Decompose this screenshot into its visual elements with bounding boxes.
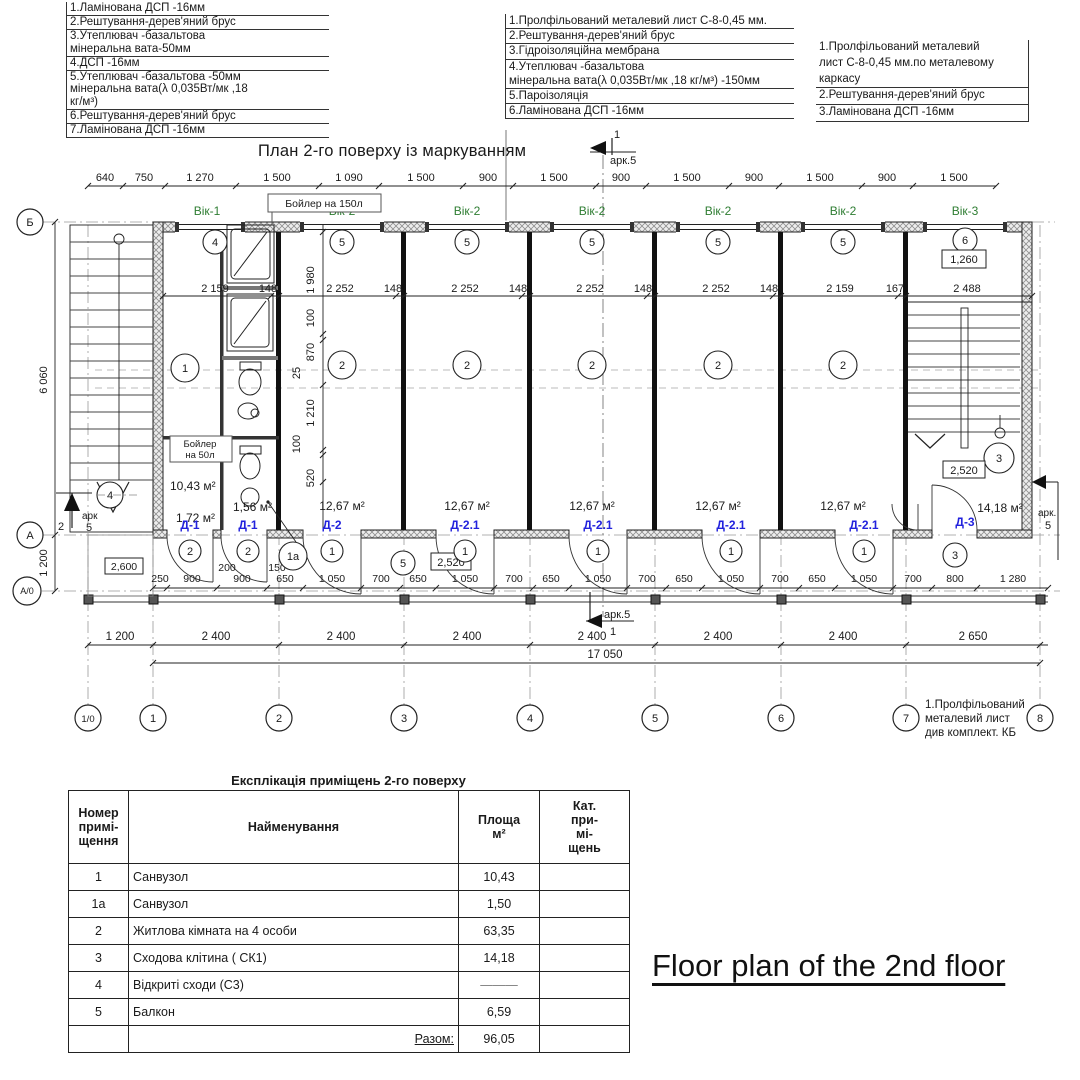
dim-inner: 700 bbox=[372, 573, 390, 585]
note-line: 2.Рештування-дерев'яний брус bbox=[506, 29, 794, 44]
note-line: 2.Рештування-дерев'яний брус bbox=[67, 16, 329, 30]
sheet-ref: арк. bbox=[1038, 508, 1056, 519]
col-header-name: Найменування bbox=[129, 791, 459, 864]
window-label: Вік-1 bbox=[194, 204, 221, 218]
dim-top: 900 bbox=[745, 172, 763, 184]
element-number: 6 bbox=[962, 235, 968, 247]
total-label-cell: Разом: bbox=[129, 1026, 459, 1053]
dim-1200: 1 200 bbox=[38, 549, 50, 577]
dim-inner: 1 050 bbox=[585, 573, 611, 585]
dim-bottom: 2 650 bbox=[959, 631, 988, 643]
dim-inner: 900 bbox=[233, 573, 251, 585]
table-title: Експлікація приміщень 2-го поверху bbox=[68, 773, 629, 788]
dim-vert: 520 bbox=[305, 469, 317, 487]
dim-mid: 2 252 bbox=[576, 283, 604, 295]
room-number-cell: 1a bbox=[69, 891, 129, 918]
room-name-cell: Балкон bbox=[129, 999, 459, 1026]
note-profiled-sheet: 1.Пролфільований металевий лист див комп… bbox=[925, 698, 1045, 740]
dim-vert: 870 bbox=[305, 343, 317, 361]
axis-label: 5 bbox=[652, 713, 658, 725]
dim-bottom: 2 400 bbox=[327, 631, 356, 643]
door-number: 3 bbox=[952, 550, 958, 562]
axis-label: Б bbox=[26, 217, 33, 229]
room-name-cell: Санвузол bbox=[129, 864, 459, 891]
note-line: 1.Пролфільований металевий bbox=[816, 40, 1028, 56]
room-circles: 1 2 2 2 2 2 3 4 bbox=[97, 351, 1014, 508]
dim-mid: 2 159 bbox=[201, 283, 229, 295]
axis-label: 1 bbox=[150, 713, 156, 725]
partition-walls bbox=[276, 232, 908, 530]
area-room2: 12,67 м² bbox=[695, 499, 741, 513]
window-label: Вік-3 bbox=[952, 204, 979, 218]
dim-top: 900 bbox=[612, 172, 630, 184]
note-line: лист С-8-0,45 мм.по металевому bbox=[816, 56, 1028, 72]
door-mark: Д-1 bbox=[238, 518, 258, 532]
room-number: 4 bbox=[107, 490, 113, 502]
dim-mid: 167 bbox=[886, 283, 904, 295]
room-number: 2 bbox=[339, 360, 345, 372]
dim-mid: 2 252 bbox=[326, 283, 354, 295]
area-room2: 12,67 м² bbox=[319, 499, 365, 513]
window-label: Вік-2 bbox=[705, 204, 732, 218]
room-name-cell: Житлова кімната на 4 особи bbox=[129, 918, 459, 945]
room-number-1a: 1a bbox=[287, 551, 300, 563]
dim-top: 1 500 bbox=[540, 172, 568, 184]
door-number: 1 bbox=[728, 546, 734, 558]
area-room3: 14,18 м² bbox=[977, 501, 1023, 515]
room-area-cell: 1,50 bbox=[459, 891, 540, 918]
room-name-cell: Сходова клітина ( СК1) bbox=[129, 945, 459, 972]
dim-inner: 650 bbox=[675, 573, 693, 585]
dim-inner: 1 050 bbox=[319, 573, 345, 585]
boiler-150-label: Бойлер на 150л bbox=[285, 198, 363, 210]
element-number: 5 bbox=[715, 237, 721, 249]
element-number: 5 bbox=[464, 237, 470, 249]
sheet-ref: 5 bbox=[1045, 520, 1051, 532]
dim-mid: 148 bbox=[384, 283, 402, 295]
room-number-cell: 2 bbox=[69, 918, 129, 945]
door-mark: Д-3 bbox=[955, 515, 975, 529]
section-marker-left: 2 арк 5 bbox=[56, 493, 98, 534]
dim-top: 900 bbox=[479, 172, 497, 184]
dim-inner: 900 bbox=[183, 573, 201, 585]
table-row: 3 Сходова клітина ( СК1) 14,18 bbox=[69, 945, 630, 972]
note-line: мінеральна вата(λ 0,035Вт/мк ,18 bbox=[67, 83, 329, 96]
floor-plan-drawing: 640 750 1 270 1 500 1 090 1 500 900 1 50… bbox=[0, 130, 1080, 770]
door-mark: Д-2.1 bbox=[583, 518, 613, 532]
dim-200: 200 bbox=[218, 562, 236, 574]
dim-mid: 2 252 bbox=[702, 283, 730, 295]
sheet-ref: арк.5 bbox=[604, 609, 630, 621]
dim-mid: 148 bbox=[259, 283, 277, 295]
area-room2: 12,67 м² bbox=[820, 499, 866, 513]
table-row: 5 Балкон 6,59 bbox=[69, 999, 630, 1026]
door-mark: Д-2 bbox=[322, 518, 342, 532]
dim-inner: 1 050 bbox=[452, 573, 478, 585]
dim-line-vert-chain: 1 980 100 870 25 1 210 100 520 bbox=[291, 225, 326, 530]
dim-total: 17 050 bbox=[587, 649, 622, 661]
room-area-cell: 10,43 bbox=[459, 864, 540, 891]
dim-bottom: 2 400 bbox=[453, 631, 482, 643]
dim-inner: 650 bbox=[542, 573, 560, 585]
col-header-number: Номерпримі-щення bbox=[69, 791, 129, 864]
right-staircase bbox=[906, 302, 1032, 448]
room-category-cell bbox=[540, 945, 630, 972]
note-line: мінеральна вата-50мм bbox=[67, 43, 329, 57]
dim-inner: 1 050 bbox=[718, 573, 744, 585]
sheet-ref: арк.5 bbox=[610, 155, 636, 167]
room-number: 1 bbox=[182, 363, 188, 375]
dim-inner: 800 bbox=[946, 573, 964, 585]
dim-mid: 148 bbox=[509, 283, 527, 295]
room-area-cell: ——— bbox=[459, 972, 540, 999]
room-area-cell: 6,59 bbox=[459, 999, 540, 1026]
note-line: 3.Ламінована ДСП -16мм bbox=[816, 105, 1028, 122]
dim-top: 1 500 bbox=[673, 172, 701, 184]
room-category-cell bbox=[540, 864, 630, 891]
window-label: Вік-2 bbox=[830, 204, 857, 218]
dim-bottom: 2 400 bbox=[704, 631, 733, 643]
area-room2: 12,67 м² bbox=[569, 499, 615, 513]
door-mark: Д-2.1 bbox=[716, 518, 746, 532]
empty-cell bbox=[69, 1026, 129, 1053]
door-mark: Д-2.1 bbox=[849, 518, 879, 532]
axis-label: А bbox=[26, 530, 34, 542]
room-category-cell bbox=[540, 918, 630, 945]
exterior-walls bbox=[153, 222, 1032, 538]
dim-mid: 148 bbox=[760, 283, 778, 295]
dim-vert: 100 bbox=[305, 309, 317, 327]
axis-label: 6 bbox=[778, 713, 784, 725]
dim-inner: 650 bbox=[409, 573, 427, 585]
dim-inner: 1 280 bbox=[1000, 573, 1026, 585]
dim-bottom: 2 400 bbox=[202, 631, 231, 643]
dim-mid: 148 bbox=[634, 283, 652, 295]
axis-bubbles-left: Б А А/0 bbox=[13, 209, 43, 605]
dim-vert: 1 980 bbox=[305, 266, 317, 294]
dim-top: 900 bbox=[878, 172, 896, 184]
door-mark: Д-2.1 bbox=[450, 518, 480, 532]
dim-top: 1 500 bbox=[806, 172, 834, 184]
level-2600: 2,600 bbox=[111, 561, 137, 573]
window-label: Вік-2 bbox=[454, 204, 481, 218]
dim-inner: 650 bbox=[276, 573, 294, 585]
dim-top: 640 bbox=[96, 172, 114, 184]
empty-cell bbox=[540, 1026, 630, 1053]
boiler-150: Бойлер на 150л bbox=[268, 194, 381, 225]
boiler-50: Бойлер на 50л bbox=[170, 436, 232, 462]
axis-label: 4 bbox=[527, 713, 533, 725]
door-number: 2 bbox=[187, 546, 193, 558]
element-number: 5 bbox=[589, 237, 595, 249]
room-category-cell bbox=[540, 891, 630, 918]
dim-mid: 2 252 bbox=[451, 283, 479, 295]
room-number-cell: 5 bbox=[69, 999, 129, 1026]
axis-label: А/0 bbox=[20, 586, 34, 596]
table-row: 2 Житлова кімната на 4 особи 63,35 bbox=[69, 918, 630, 945]
dim-inner: 650 bbox=[808, 573, 826, 585]
area-room1: 10,43 м² bbox=[170, 479, 216, 493]
room-number: 2 bbox=[715, 360, 721, 372]
table-row: 4 Відкриті сходи (С3) ——— bbox=[69, 972, 630, 999]
total-area-cell: 96,05 bbox=[459, 1026, 540, 1053]
boiler-50-label: на 50л bbox=[185, 450, 214, 461]
dim-top: 1 270 bbox=[186, 172, 214, 184]
dim-top: 1 090 bbox=[335, 172, 363, 184]
note-line: каркасу bbox=[816, 72, 1028, 89]
note-line: 4.ДСП -16мм bbox=[67, 57, 329, 71]
note-line: див комплект. КБ bbox=[925, 726, 1045, 740]
note-line: 4.Утеплювач -базальтова bbox=[506, 60, 794, 74]
door-number: 1 bbox=[329, 546, 335, 558]
note-wall-layers-right: 1.Пролфільований металевий лист С-8-0,45… bbox=[816, 40, 1029, 122]
room-category-cell bbox=[540, 972, 630, 999]
door-number: 2 bbox=[245, 546, 251, 558]
note-line: 3.Гідроізоляційна мембрана bbox=[506, 44, 794, 59]
dim-mid: 2 488 bbox=[953, 283, 981, 295]
section-marker-top: арк.5 1 bbox=[590, 130, 636, 167]
balcony-number: 5 bbox=[400, 558, 406, 570]
note-line: 5.Пароізоляція bbox=[506, 89, 794, 104]
level-2520: 2,520 bbox=[950, 465, 978, 477]
room-area-cell: 63,35 bbox=[459, 918, 540, 945]
dim-top: 750 bbox=[135, 172, 153, 184]
room-number-cell: 3 bbox=[69, 945, 129, 972]
dim-inner: 700 bbox=[505, 573, 523, 585]
section-number: 1 bbox=[614, 130, 620, 141]
room-number-cell: 4 bbox=[69, 972, 129, 999]
dim-line-top: 640 750 1 270 1 500 1 090 1 500 900 1 50… bbox=[85, 172, 999, 189]
dim-vert: 100 bbox=[291, 435, 303, 453]
axis-label: 2 bbox=[276, 713, 282, 725]
dim-6060: 6 060 bbox=[38, 366, 50, 394]
section-number: 1 bbox=[610, 626, 616, 638]
dim-vert: 25 bbox=[291, 367, 303, 379]
boiler-50-label: Бойлер bbox=[184, 439, 217, 450]
dim-bottom: 2 400 bbox=[829, 631, 858, 643]
door-number: 1 bbox=[861, 546, 867, 558]
dim-inner: 700 bbox=[638, 573, 656, 585]
note-line: 2.Рештування-дерев'яний брус bbox=[816, 88, 1028, 105]
table-row: 1a Санвузол 1,50 bbox=[69, 891, 630, 918]
section-marker-right: арк. 5 bbox=[1032, 475, 1058, 560]
dim-inner: 1 050 bbox=[851, 573, 877, 585]
axis-label: 3 bbox=[401, 713, 407, 725]
area-156: 1,56 м² bbox=[233, 500, 272, 514]
note-line: 3.Утеплювач -базальтова bbox=[67, 30, 329, 43]
axis-label: 1/0 bbox=[81, 714, 94, 725]
table-row: 1 Санвузол 10,43 bbox=[69, 864, 630, 891]
dim-top: 1 500 bbox=[263, 172, 291, 184]
room-number: 2 bbox=[840, 360, 846, 372]
dim-mid: 2 159 bbox=[826, 283, 854, 295]
note-line: кг/м³) bbox=[67, 96, 329, 110]
col-header-area: Площам² bbox=[459, 791, 540, 864]
room-name-cell: Санвузол bbox=[129, 891, 459, 918]
dim-top: 1 500 bbox=[940, 172, 968, 184]
room-category-cell bbox=[540, 999, 630, 1026]
area-room2: 12,67 м² bbox=[444, 499, 490, 513]
explication-table: Експлікація приміщень 2-го поверху Номер… bbox=[68, 773, 629, 1053]
axis-label: 7 bbox=[903, 713, 909, 725]
level-1260: 1,260 bbox=[950, 254, 978, 266]
table-total-row: Разом: 96,05 bbox=[69, 1026, 630, 1053]
dim-vert: 1 210 bbox=[305, 399, 317, 427]
element-number: 5 bbox=[840, 237, 846, 249]
window-label: Вік-2 bbox=[579, 204, 606, 218]
dim-line-bottom: 1 200 2 400 2 400 2 400 2 400 2 400 2 40… bbox=[85, 631, 1048, 666]
section-number: 2 bbox=[58, 521, 64, 533]
note-wall-layers-left: 1.Ламінована ДСП -16мм 2.Рештування-дере… bbox=[66, 2, 329, 138]
col-header-category: Кат.при-мі-щень bbox=[540, 791, 630, 864]
note-line: 1.Ламінована ДСП -16мм bbox=[67, 2, 329, 16]
room-number-cell: 1 bbox=[69, 864, 129, 891]
note-line: 6.Ламінована ДСП -16мм bbox=[506, 104, 794, 119]
dim-top: 1 500 bbox=[407, 172, 435, 184]
note-line: металевий лист bbox=[925, 712, 1045, 726]
dim-inner: 700 bbox=[771, 573, 789, 585]
drawing-caption: Floor plan of the 2nd floor bbox=[652, 948, 1005, 984]
door-mark: Д-1 bbox=[180, 518, 200, 532]
door-number: 1 bbox=[595, 546, 601, 558]
door-number: 1 bbox=[462, 546, 468, 558]
room-name-cell: Відкриті сходи (С3) bbox=[129, 972, 459, 999]
room-number: 2 bbox=[464, 360, 470, 372]
dim-inner: 700 bbox=[904, 573, 922, 585]
dim-bottom: 2 400 bbox=[578, 631, 607, 643]
room-number: 3 bbox=[996, 453, 1002, 465]
sheet-ref: 5 bbox=[86, 522, 92, 534]
dim-bottom: 1 200 bbox=[106, 631, 135, 643]
dim-inner: 250 bbox=[151, 573, 169, 585]
note-line: 1.Пролфільований металевий лист С-8-0,45… bbox=[506, 14, 794, 29]
room-area-cell: 14,18 bbox=[459, 945, 540, 972]
note-line: 5.Утеплювач -базальтова -50мм bbox=[67, 71, 329, 84]
note-roof-layers-middle: 1.Пролфільований металевий лист С-8-0,45… bbox=[505, 14, 794, 119]
roof-break-lines bbox=[95, 370, 1040, 388]
element-number: 5 bbox=[339, 237, 345, 249]
note-line: 6.Рештування-дерев'яний брус bbox=[67, 110, 329, 124]
note-line: 1.Пролфільований bbox=[925, 698, 1045, 712]
sheet-ref: арк bbox=[82, 511, 98, 522]
room-number: 2 bbox=[589, 360, 595, 372]
element-number: 4 bbox=[212, 237, 218, 249]
note-line: мінеральна вата(λ 0,035Вт/мк ,18 кг/м³) … bbox=[506, 74, 794, 89]
